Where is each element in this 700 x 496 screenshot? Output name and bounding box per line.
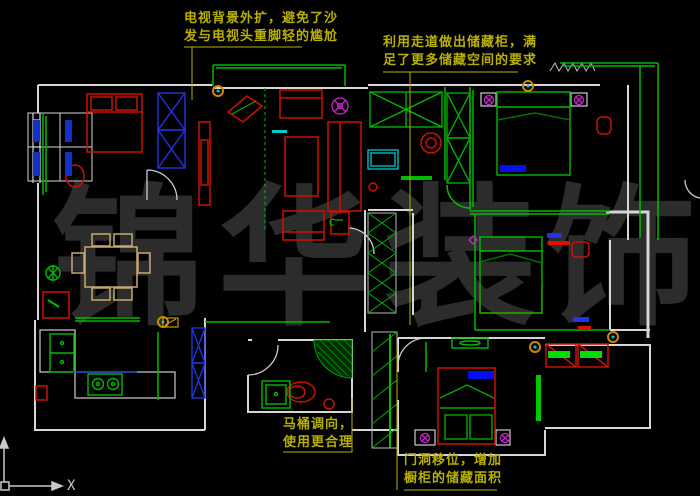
plant-icon	[46, 265, 60, 281]
faucet	[48, 300, 59, 307]
ucs-axis-icon	[0, 438, 62, 490]
annotation-line: 足了更多储藏空间的要求	[383, 52, 537, 70]
bed-top-left	[87, 94, 142, 152]
bathroom-sink	[262, 381, 290, 408]
break-line-icon	[550, 63, 595, 71]
leader-tv	[184, 47, 302, 100]
lamp-icons	[332, 96, 584, 443]
tv-cabinet	[199, 122, 210, 205]
lamp-icon	[485, 96, 494, 105]
lamp-icon	[501, 434, 510, 443]
shoe-cabinet	[228, 96, 262, 122]
annotation-line: 利用走道做出储藏柜，满	[383, 34, 537, 52]
annotation-line: 门洞移位，增加	[404, 452, 502, 470]
shower-hatch	[314, 340, 352, 378]
bed-mid-right-frame	[480, 284, 542, 313]
lamp-icon	[575, 96, 584, 105]
ceiling-fan-icon	[332, 98, 348, 114]
cyan-fixtures	[272, 130, 398, 169]
toilet-bottom	[287, 382, 334, 409]
wardrobe-x-icon	[158, 93, 205, 398]
annotation-toilet-direction: 马桶调向， 使用更合理	[283, 416, 353, 452]
sofa-set	[280, 90, 361, 240]
kitchen-sink	[50, 334, 74, 372]
bed-mid-right	[480, 237, 542, 313]
kitchen-counter	[40, 330, 175, 398]
corridor-storage-cabinet	[368, 213, 396, 313]
shower-panel	[370, 92, 442, 127]
toilet	[421, 133, 441, 153]
annotation-line: 发与电视头重脚轻的尴尬	[184, 28, 338, 46]
stool	[572, 242, 589, 257]
shoe-cabinet-line	[232, 101, 256, 114]
annotation-line: 使用更合理	[283, 434, 353, 452]
lamp-icon	[421, 434, 430, 443]
stove	[88, 374, 122, 395]
annotation-door-relocation: 门洞移位，增加 橱柜的储藏面积	[404, 452, 502, 488]
key-symbol	[330, 219, 343, 225]
modified-walls	[43, 63, 658, 448]
bed-sheets-bottom-right	[440, 385, 494, 439]
annotation-corridor-storage: 利用走道做出储藏柜，满 足了更多储藏空间的要求	[383, 34, 537, 70]
door-panel	[536, 375, 541, 421]
dining-set	[72, 234, 150, 300]
annotation-tv-background: 电视背景外扩，避免了沙 发与电视头重脚轻的尴尬	[184, 10, 338, 46]
annotation-line: 橱柜的储藏面积	[404, 470, 502, 488]
ucs-x-label: X	[67, 478, 75, 494]
green-furniture	[46, 92, 602, 439]
annotation-line: 马桶调向，	[283, 416, 353, 434]
tv-shelf	[452, 338, 488, 348]
wardrobe-x-icon-green	[447, 93, 470, 183]
balcony-chair	[597, 117, 611, 134]
bed-top-right	[497, 92, 570, 175]
cad-drawing-canvas: 锦 华 装 饰	[0, 0, 700, 496]
index-symbols	[158, 81, 618, 352]
annotation-line: 电视背景外扩，避免了沙	[184, 10, 338, 28]
walls	[28, 63, 700, 455]
kitchen-fixture	[36, 386, 47, 400]
